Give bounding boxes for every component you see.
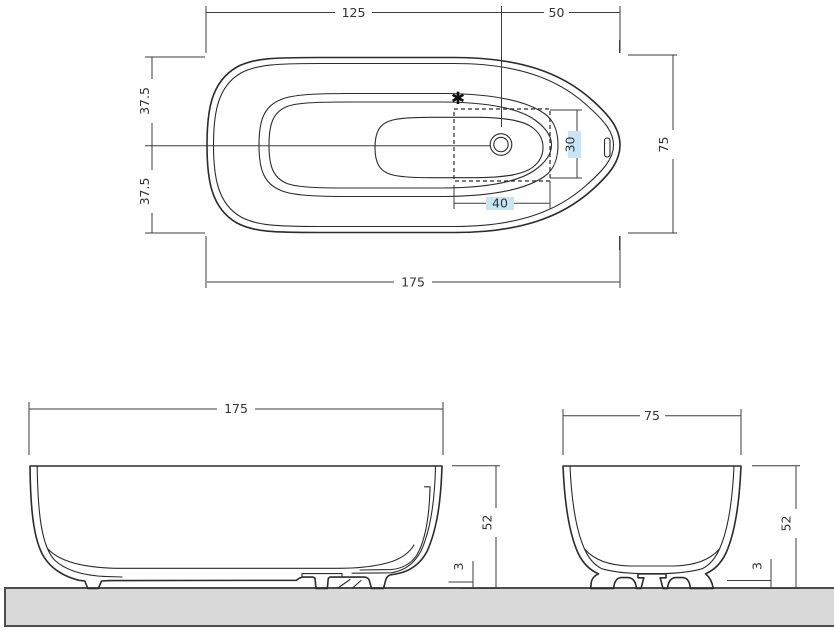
plan-dim-40-label: 40 xyxy=(492,196,508,211)
technical-drawing-bathtub: 125 50 37.5 37.5 75 30 40 175 ✱ 175 52 3… xyxy=(0,0,834,633)
side-dim-75-label: 75 xyxy=(644,408,660,423)
front-dim-52-label: 52 xyxy=(480,515,495,531)
star-marker: ✱ xyxy=(451,89,465,109)
front-dim-175-label: 175 xyxy=(224,401,248,416)
front-inner-wall-lines xyxy=(37,466,435,588)
plan-dim-37-5-top-label: 37.5 xyxy=(137,87,152,115)
drawing-svg: 125 50 37.5 37.5 75 30 40 175 ✱ 175 52 3… xyxy=(0,0,834,633)
side-tub-silhouette xyxy=(563,466,741,589)
floor-slab xyxy=(5,588,834,626)
side-inner-wall-lines xyxy=(570,466,734,574)
front-dim-3-label: 3 xyxy=(451,563,466,571)
overflow-slot xyxy=(605,138,611,157)
plan-dim-50-label: 50 xyxy=(549,5,565,20)
plan-dim-75-label: 75 xyxy=(656,137,671,153)
drain-inner-circle xyxy=(494,137,508,151)
plan-view: 125 50 37.5 37.5 75 30 40 175 ✱ xyxy=(137,5,677,290)
plan-dimension-lines xyxy=(145,6,677,288)
side-dim-52-label: 52 xyxy=(779,516,794,532)
plan-basin-floor-outline xyxy=(375,117,543,177)
plan-dim-37-5-bottom-label: 37.5 xyxy=(137,178,152,206)
plan-dim-175-label: 175 xyxy=(401,275,425,290)
side-elevation-view: 75 52 3 xyxy=(563,408,800,589)
side-dim-3-label: 3 xyxy=(750,562,765,570)
front-elevation-view: 175 52 3 xyxy=(29,401,500,589)
plan-dim-30-label: 30 xyxy=(563,137,578,153)
plan-dim-125-label: 125 xyxy=(342,5,366,20)
plan-rim-inner-edge xyxy=(214,64,614,227)
